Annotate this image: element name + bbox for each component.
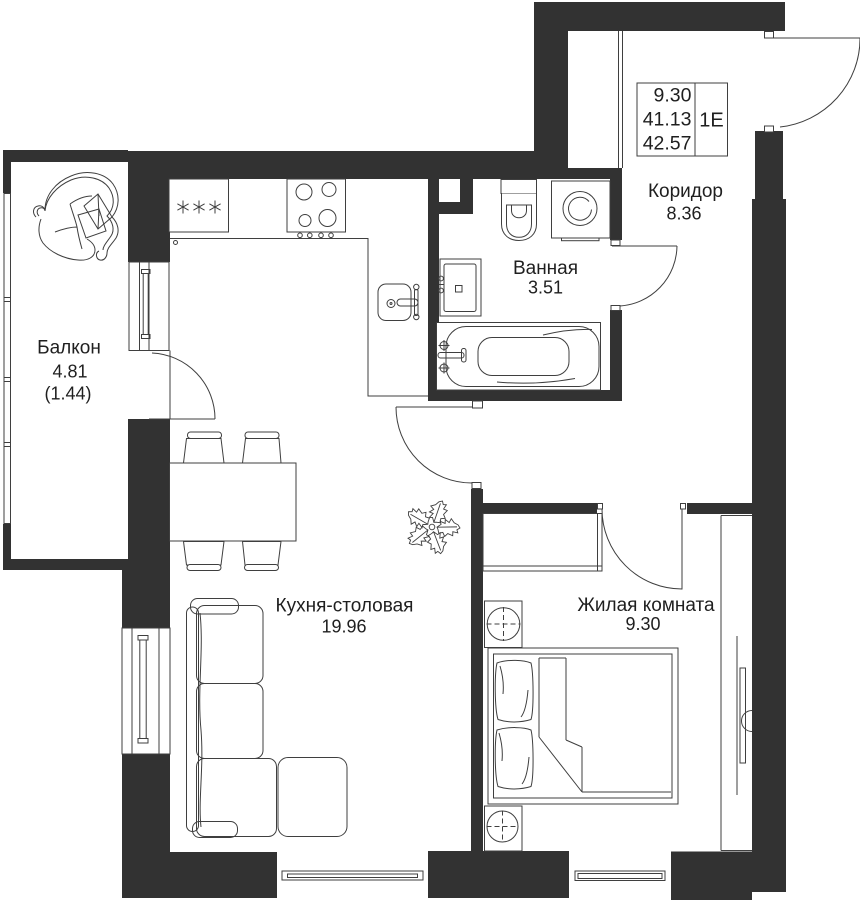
svg-text:Ванная: Ванная (513, 258, 578, 279)
svg-text:8.36: 8.36 (666, 204, 701, 224)
svg-text:Жилая комната: Жилая комната (577, 595, 715, 616)
svg-text:9.30: 9.30 (625, 614, 660, 634)
svg-text:41.13: 41.13 (643, 109, 692, 131)
svg-text:(1.44): (1.44) (44, 384, 91, 404)
svg-text:4.81: 4.81 (52, 362, 87, 382)
svg-text:Кухня-столовая: Кухня-столовая (276, 596, 414, 617)
svg-text:Коридор: Коридор (648, 181, 723, 202)
svg-text:19.96: 19.96 (321, 617, 366, 637)
svg-text:9.30: 9.30 (654, 85, 692, 107)
svg-text:42.57: 42.57 (643, 133, 692, 155)
svg-text:3.51: 3.51 (528, 278, 563, 298)
svg-text:Балкон: Балкон (37, 338, 101, 359)
svg-text:1Е: 1Е (699, 110, 723, 132)
